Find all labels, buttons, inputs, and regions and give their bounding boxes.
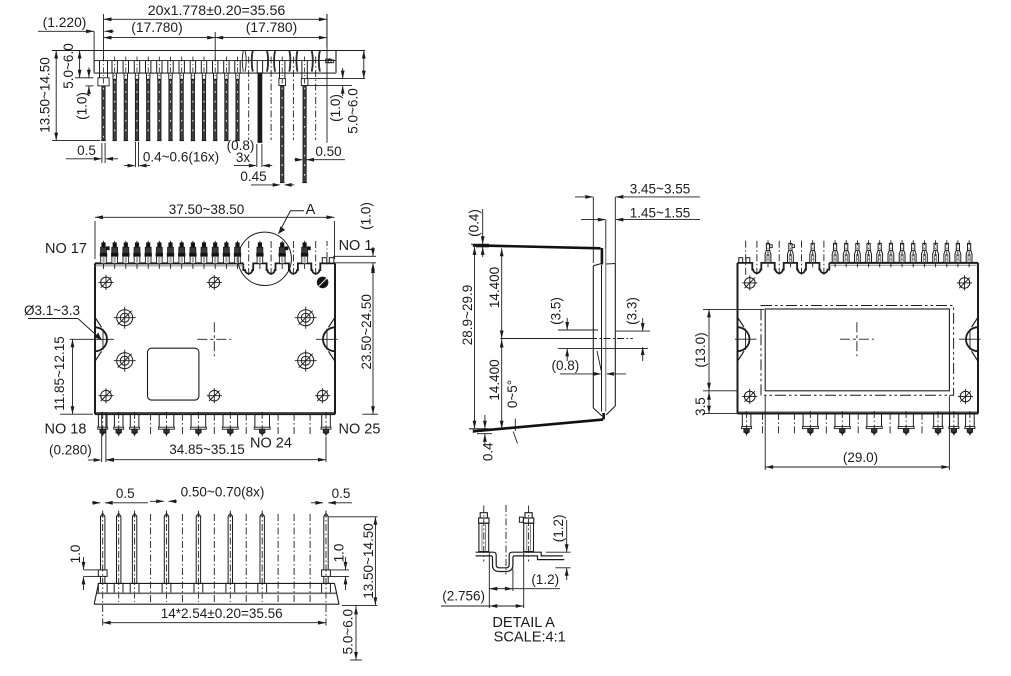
svg-text:(1.0): (1.0) [359, 202, 374, 230]
svg-text:5.0~6.0: 5.0~6.0 [61, 43, 76, 88]
svg-text:NO 17: NO 17 [45, 241, 87, 257]
svg-text:0.4: 0.4 [480, 442, 495, 461]
svg-text:1.0: 1.0 [332, 544, 347, 563]
svg-text:NO 25: NO 25 [339, 422, 381, 438]
svg-text:0.5: 0.5 [332, 486, 351, 501]
svg-text:0.5: 0.5 [77, 143, 96, 158]
svg-text:(1.0): (1.0) [75, 92, 90, 120]
svg-text:(1.2): (1.2) [551, 515, 566, 543]
svg-text:(3.5): (3.5) [549, 297, 564, 325]
svg-text:5.0~6.0: 5.0~6.0 [346, 88, 361, 133]
svg-text:3x: 3x [236, 150, 251, 165]
svg-text:(17.780): (17.780) [246, 20, 297, 35]
svg-text:1.0: 1.0 [68, 545, 83, 564]
svg-text:14*2.54±0.20=35.56: 14*2.54±0.20=35.56 [161, 606, 283, 621]
svg-text:(1.2): (1.2) [531, 572, 559, 587]
svg-text:(2.756): (2.756) [442, 589, 485, 604]
svg-text:(1.220): (1.220) [43, 15, 87, 30]
svg-text:(0.280): (0.280) [49, 442, 92, 457]
svg-text:0.45: 0.45 [240, 169, 266, 184]
svg-text:5.0~6.0: 5.0~6.0 [341, 609, 356, 654]
svg-text:0.50~0.70(8x): 0.50~0.70(8x) [181, 484, 265, 499]
svg-text:23.50~24.50: 23.50~24.50 [359, 294, 374, 369]
svg-text:11.85~12.15: 11.85~12.15 [52, 336, 67, 410]
svg-text:28.9~29.9: 28.9~29.9 [460, 285, 475, 345]
svg-text:34.85~35.15: 34.85~35.15 [169, 442, 244, 457]
svg-text:NO 24: NO 24 [250, 435, 292, 451]
svg-text:(29.0): (29.0) [843, 450, 878, 465]
svg-text:20x1.778±0.20=35.56: 20x1.778±0.20=35.56 [148, 3, 286, 19]
svg-text:0.4~0.6(16x): 0.4~0.6(16x) [143, 150, 219, 165]
svg-text:3.45~3.55: 3.45~3.55 [630, 182, 690, 197]
svg-text:1.45~1.55: 1.45~1.55 [630, 206, 690, 221]
svg-text:DETAIL A: DETAIL A [492, 615, 555, 631]
svg-text:(0.4): (0.4) [466, 209, 481, 237]
svg-text:SCALE:4:1: SCALE:4:1 [494, 630, 566, 646]
svg-text:3.5: 3.5 [693, 397, 708, 416]
svg-text:13.50~14.50: 13.50~14.50 [38, 57, 53, 132]
svg-text:(3.3): (3.3) [625, 297, 640, 325]
svg-text:14.400: 14.400 [487, 267, 502, 308]
svg-text:(13.0): (13.0) [693, 332, 708, 367]
svg-text:0.50: 0.50 [315, 144, 341, 159]
svg-text:A: A [306, 202, 316, 218]
svg-text:NO 1: NO 1 [339, 238, 373, 254]
svg-text:0.5: 0.5 [116, 486, 135, 501]
svg-text:14.400: 14.400 [487, 359, 502, 400]
svg-text:(0.8): (0.8) [552, 358, 580, 373]
svg-text:(1.0): (1.0) [328, 94, 343, 122]
svg-text:Ø3.1~3.3: Ø3.1~3.3 [24, 303, 80, 318]
svg-text:NO 18: NO 18 [45, 421, 87, 437]
svg-text:37.50~38.50: 37.50~38.50 [169, 202, 244, 217]
svg-text:13.50~14.50: 13.50~14.50 [361, 523, 376, 598]
svg-text:0~5°: 0~5° [505, 380, 520, 408]
svg-text:(17.780): (17.780) [131, 20, 182, 35]
